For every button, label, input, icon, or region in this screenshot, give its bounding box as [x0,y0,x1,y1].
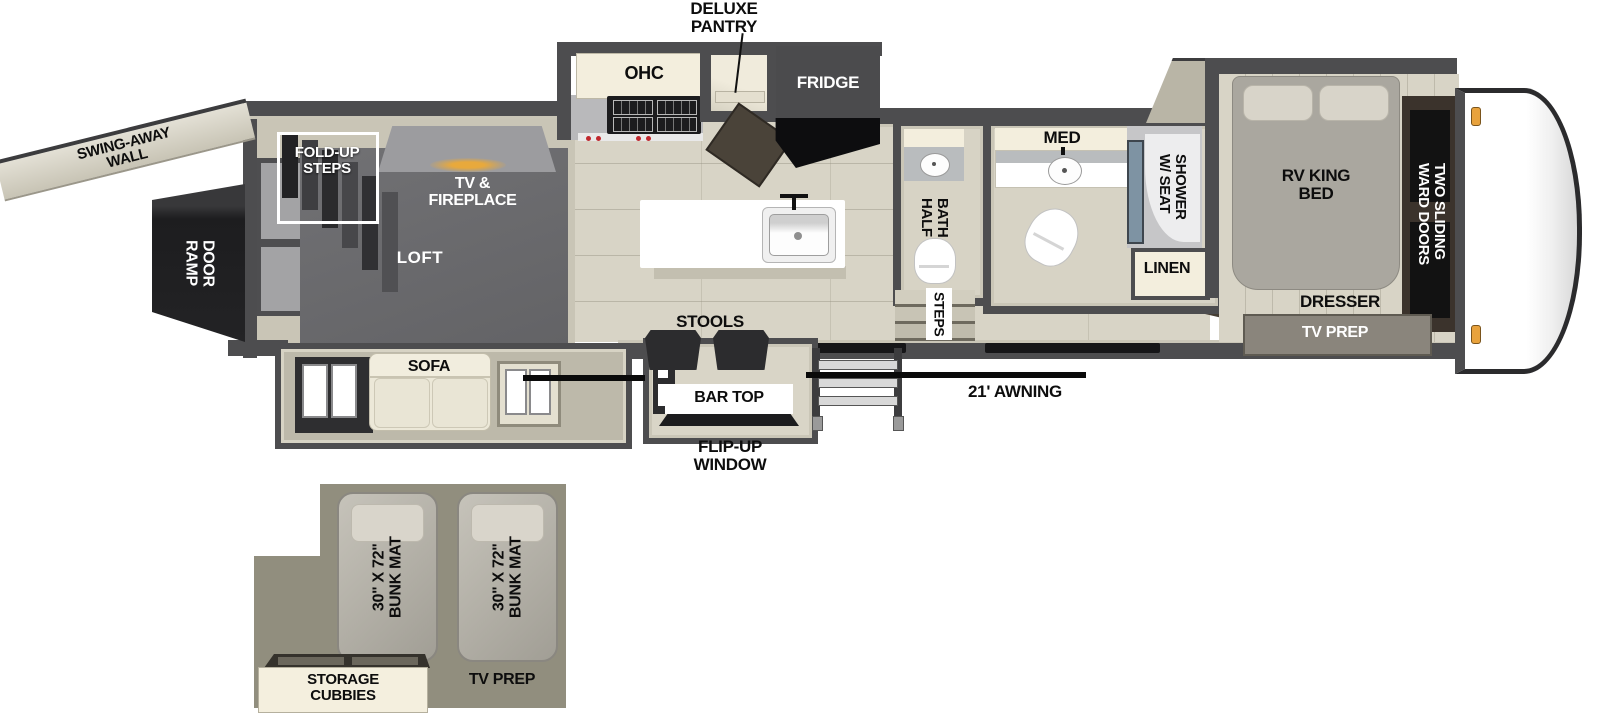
steps-label: STEPS [932,292,947,336]
stove-knob [596,136,601,141]
bar-top-label: BAR TOP [679,390,779,407]
shower: SHOWER W/ SEAT [1127,126,1202,248]
bedroom-tv-prep-label: TV PREP [1285,325,1385,342]
slide-window [497,361,561,427]
fridge-label: FRIDGE [786,74,870,92]
fireplace-glow-icon [430,158,506,172]
bed-pillow [1319,85,1389,121]
kitchen-sink [762,207,836,263]
bedroom-left-wall [1205,58,1219,298]
bath-vanity [995,150,1131,188]
marker-light-icon [1471,325,1481,344]
cubby-slot [278,657,344,665]
entry-step-foot [812,416,823,431]
slide-window [295,357,373,433]
rv-floorplan: SWING-AWAY WALL RAMP DOOR FOLD-UP STEPS … [0,0,1600,726]
bunk-room: 30" X 72" BUNK MAT 30" X 72" BUNK MAT ST… [250,478,570,716]
storage-cubbies-label: STORAGE CUBBIES [283,672,403,704]
shower-label-wrap: SHOWER W/ SEAT [1143,130,1201,244]
stove-burner [613,100,653,115]
ohc-label: OHC [596,64,692,83]
stove-knob [636,136,641,141]
med-label: MED [1027,129,1097,147]
wardrobe: TWO SLIDING WARD DOORS [1402,96,1460,332]
window-pane [331,364,357,418]
stools-label: STOOLS [648,313,772,331]
stool [713,330,769,370]
storage-cubbies: STORAGE CUBBIES [258,654,430,712]
faucet-icon [792,196,796,210]
stove-knob [586,136,591,141]
swing-away-wall-label: SWING-AWAY WALL [75,125,175,178]
toilet-seat-line [919,265,949,268]
kitchen-slide-left-wall [557,42,571,140]
shower-label: SHOWER W/ SEAT [1156,154,1188,220]
rv-king-bed: RV KING BED [1232,76,1400,290]
ramp-door: RAMP DOOR [152,184,245,342]
awning-label: 21' AWNING [940,383,1090,401]
front-cap [1455,88,1582,374]
entry-step-rung [818,396,898,406]
wardrobe-label-wrap: TWO SLIDING WARD DOORS [1402,96,1460,332]
main-bath-room: MED SHOWER W/ SEAT LINEN [983,118,1226,314]
bar-counter: BAR TOP [665,384,793,414]
bath-sink-drain [1062,168,1067,173]
toilet-seat-line [1033,232,1064,251]
bunk-mat-label-wrap: 30" X 72" BUNK MAT [339,494,436,660]
sofa-label: SOFA [391,359,467,376]
pantry-shelf [715,91,765,103]
sofa-cushion [432,378,488,428]
linen-cabinet: LINEN [1131,248,1210,300]
sofa-cushion [374,378,430,428]
stool [645,330,701,370]
entry-step-foot [893,416,904,431]
kitchen-island [640,200,845,268]
window-pane [302,364,328,418]
loft-label: LOFT [385,249,455,267]
cubby-top [264,654,430,668]
shower-glass [1127,140,1144,244]
garage-rear-wall [243,110,257,358]
awning-line [806,372,1086,378]
bottom-wall-window [985,343,1160,353]
stove-burner [657,100,697,115]
swing-away-wall: SWING-AWAY WALL [0,99,255,202]
bath-toilet [1016,200,1087,275]
entry-step-rung [818,360,898,370]
bunk-mat: 30" X 72" BUNK MAT [337,492,438,662]
half-bath-sink-panel [904,147,964,181]
stair-tread [382,192,398,292]
ramp-door-label: RAMP DOOR [182,240,216,287]
entry-steps [812,348,902,430]
ramp-door-label-wrap: RAMP DOOR [152,184,245,342]
bunk-mat-label-wrap: 30" X 72" BUNK MAT [459,494,556,660]
sofa-slide: SOFA [275,343,632,449]
awning-line [523,375,645,381]
linen-label: LINEN [1137,261,1197,278]
stove-cooktop [607,96,701,134]
bunk-tv-prep-label: TV PREP [450,672,554,689]
steps-label-wrap: STEPS [926,288,952,340]
half-bath-label: HALF BATH [918,198,950,237]
half-bath-counter [904,129,964,147]
stove-burner [657,117,697,132]
marker-light-icon [1471,107,1481,126]
bed-pillow [1243,85,1313,121]
half-bath-room: HALF BATH [893,118,991,306]
half-bath-toilet [914,238,956,284]
sink-drain [794,232,802,240]
deluxe-pantry-label: DELUXE PANTRY [668,0,780,36]
dresser-label: DRESSER [1275,293,1405,311]
cubby-face: STORAGE CUBBIES [258,667,428,713]
dresser: TV PREP [1243,314,1432,356]
cubby-slot [352,657,418,665]
bunk-mat-label: 30" X 72" BUNK MAT [490,536,525,618]
bunk-mat: 30" X 72" BUNK MAT [457,492,558,662]
rv-king-bed-label: RV KING BED [1266,167,1366,203]
bedroom-slide-wedge [1146,58,1210,123]
bar-ledge [659,414,799,426]
bedroom-top-wall [1205,58,1457,74]
stove-knob [646,136,651,141]
bath-faucet-icon [1061,147,1065,155]
garage-top-wall [243,101,567,119]
half-bath-drain [932,162,936,166]
steps-label-strip: STEPS [926,288,952,340]
tv-fireplace-label: TV & FIREPLACE [405,176,540,210]
entry-step-rung [818,378,898,388]
fold-up-steps-label: FOLD-UP STEPS [281,145,373,177]
stove-burner [613,117,653,132]
bunk-mat-label: 30" X 72" BUNK MAT [370,536,405,618]
flip-up-window-label: FLIP-UP WINDOW [655,438,805,474]
wardrobe-label: TWO SLIDING WARD DOORS [1415,163,1447,265]
